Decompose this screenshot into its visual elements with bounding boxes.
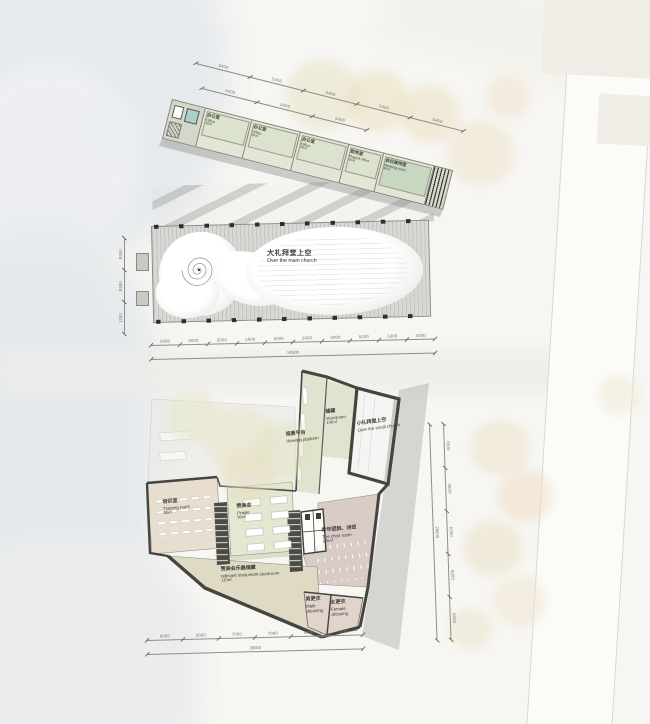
dim-segment: 5000 xyxy=(265,343,294,349)
dim-segment: 5000 xyxy=(208,344,237,350)
dim-segment: 5000 xyxy=(293,342,322,348)
room-label-male-dressing: 男更衣 Male dressing xyxy=(305,596,328,614)
dim-segment: 3600 xyxy=(440,467,447,510)
dim-segment: 6000 xyxy=(443,554,450,597)
site-plan-canvas: 办公室 Office 40㎡ 办公室 Office 40㎡ 办公室 Office… xyxy=(0,0,650,724)
room-label-instrument-storeroom: 赞美会乐器储藏 relevant instrument storeroom 11… xyxy=(221,564,280,583)
room-label-praise: 赞美会 Praise 90㎡ xyxy=(236,503,252,520)
room-label-main-church: 大礼拜堂上空 Over the main church xyxy=(267,250,317,264)
room-label-training: 培训室 Training room 90㎡ xyxy=(162,498,190,516)
dim-chain-church-left: 115085008500 xyxy=(124,238,130,334)
tree-wash xyxy=(470,420,530,476)
wc-room xyxy=(171,105,184,120)
dim-segment: 6000 xyxy=(444,597,451,640)
stair-hatch xyxy=(166,121,182,139)
dim-segment: 5000 xyxy=(407,340,436,346)
site-plan-svg xyxy=(0,0,650,724)
dim-segment: 8500 xyxy=(125,270,130,302)
dim-segment: 7000 xyxy=(438,424,445,467)
dim-segment: 5000 xyxy=(350,341,379,347)
tree-wash xyxy=(222,452,276,502)
main-church-building xyxy=(151,220,431,323)
wc-room xyxy=(184,108,200,125)
entry-stub xyxy=(136,291,149,306)
entry-stub xyxy=(136,253,149,271)
tree-wash xyxy=(463,520,523,576)
room-label-storeroom: 储藏 storeroom 140㎡ xyxy=(325,408,346,426)
tree-wash xyxy=(498,470,553,522)
dim-segment: 6000 xyxy=(147,640,183,646)
room-label-female-dressing: 女更衣 Female dressing xyxy=(330,599,355,617)
dim-segment: 8500 xyxy=(125,238,130,270)
tree-wash xyxy=(492,575,547,627)
dim-segment: 5000 xyxy=(321,341,350,347)
dim-segment: 6000 xyxy=(183,639,219,645)
spiral-stair-icon xyxy=(166,239,227,300)
dim-segment: 7000 xyxy=(255,637,291,643)
dim-segment: 6000 xyxy=(327,635,363,641)
dim-segment: 1150 xyxy=(125,302,130,334)
dim-segment: 5000 xyxy=(236,343,265,349)
dim-segment: 6000 xyxy=(291,636,327,642)
room-label-choir: 青年团契、诗班 The choir room 200㎡ xyxy=(321,526,357,545)
dim-segment: 5000 xyxy=(179,345,208,351)
dim-segment: 7000 xyxy=(219,638,255,644)
dim-segment: 5000 xyxy=(378,340,407,346)
dim-segment: 5000 xyxy=(151,345,180,351)
dim-segment: 6000 xyxy=(441,510,448,553)
